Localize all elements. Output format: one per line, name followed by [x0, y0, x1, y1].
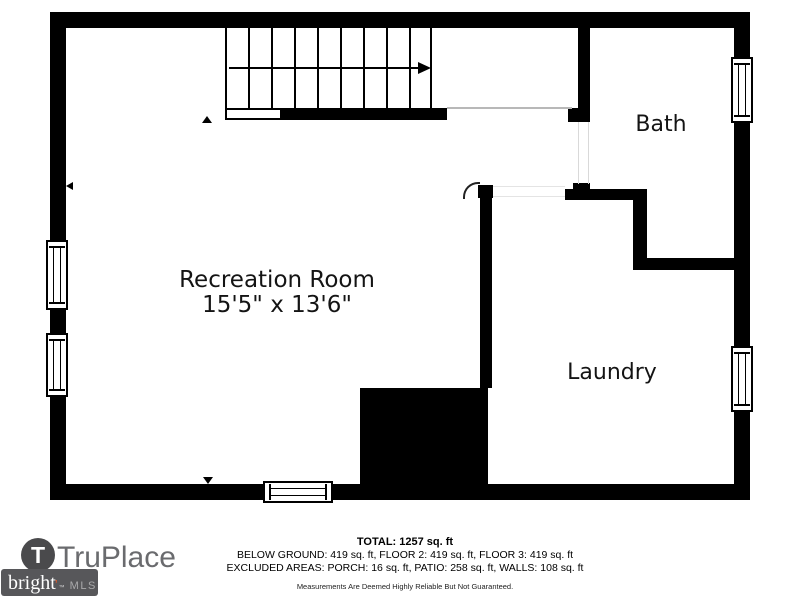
laundry-label: Laundry — [542, 360, 682, 385]
laundry-door-post — [478, 185, 493, 198]
outer-left-wall-mid — [50, 310, 66, 333]
outer-right-wall-upper — [734, 12, 750, 57]
left-window-lower-channel — [53, 341, 61, 389]
stair-direction-line — [229, 67, 418, 69]
stair-base-wall — [282, 108, 447, 120]
stair-marker-icon — [202, 116, 212, 123]
recreation-room-text: Recreation Room — [147, 268, 407, 293]
bath-door-opening-left-line — [578, 122, 579, 184]
laundry-window-channel — [738, 354, 746, 404]
outer-left-wall-upper — [50, 12, 66, 240]
hall-door-opening-bottom-line — [493, 196, 565, 197]
bath-west-wall-notch — [568, 108, 590, 122]
area-summary: TOTAL: 1257 sq. ft BELOW GROUND: 419 sq.… — [155, 536, 655, 591]
left-window-lower — [46, 333, 68, 397]
brightmls-trademark: ™ — [59, 585, 65, 591]
floor-plan: Recreation Room15'5" x 13'6"BathLaundry — [0, 0, 800, 600]
stair-direction-arrowhead-icon — [418, 62, 431, 74]
outer-bottom-wall-left — [50, 484, 263, 500]
recreation-room-text: 15'5" x 13'6" — [147, 293, 407, 318]
bath-text: Bath — [611, 112, 711, 137]
disclaimer-text: Measurements Are Deemed Highly Reliable … — [155, 582, 655, 591]
laundry-text: Laundry — [542, 360, 682, 385]
brightmls-suffix: MLS — [70, 580, 97, 592]
truplace-pin-icon: T — [21, 538, 55, 572]
outer-right-wall-mid — [734, 123, 750, 346]
stair-landing — [225, 108, 282, 120]
outer-bottom-wall-right — [333, 484, 750, 500]
laundry-north-wall — [647, 258, 734, 270]
stairwell-edge-line — [447, 107, 572, 109]
left-window-upper-channel — [53, 248, 61, 302]
bath-door-opening-right-line — [588, 122, 589, 184]
left-window-lower-cap — [49, 389, 65, 391]
outer-top-wall — [50, 12, 750, 28]
bath-window-cap — [734, 115, 750, 117]
hall-door-opening-top-line — [493, 186, 565, 187]
laundry-window — [731, 346, 753, 412]
bath-window-channel — [738, 65, 746, 115]
bath-west-wall — [578, 28, 590, 108]
bottom-window — [263, 481, 333, 503]
brightmls-accent-mark: ’ — [55, 580, 58, 590]
truplace-pin-letter: T — [31, 542, 45, 568]
hall-east-wall — [633, 197, 647, 270]
bottom-window-cap — [325, 484, 327, 500]
total-area-text: TOTAL: 1257 sq. ft — [155, 536, 655, 548]
left-wall-marker-icon — [66, 182, 73, 190]
laundry-west-wall — [480, 198, 492, 388]
bath-window — [731, 57, 753, 123]
left-window-upper — [46, 240, 68, 310]
left-window-upper-cap — [49, 302, 65, 304]
excluded-areas-text: EXCLUDED AREAS: PORCH: 16 sq. ft, PATIO:… — [155, 562, 655, 574]
brightmls-logo: bright ’ ™ MLS — [1, 569, 98, 596]
door-swing-arc — [463, 182, 480, 199]
brightmls-word: bright — [8, 572, 56, 594]
stair-tread-line — [225, 28, 227, 108]
bottom-wall-marker-icon — [203, 477, 213, 484]
floor-areas-text: BELOW GROUND: 419 sq. ft, FLOOR 2: 419 s… — [155, 549, 655, 561]
recreation-room-label: Recreation Room15'5" x 13'6" — [147, 268, 407, 318]
bath-label: Bath — [611, 112, 711, 137]
bottom-window-channel — [271, 488, 325, 496]
laundry-window-cap — [734, 404, 750, 406]
utility-block — [360, 388, 488, 484]
